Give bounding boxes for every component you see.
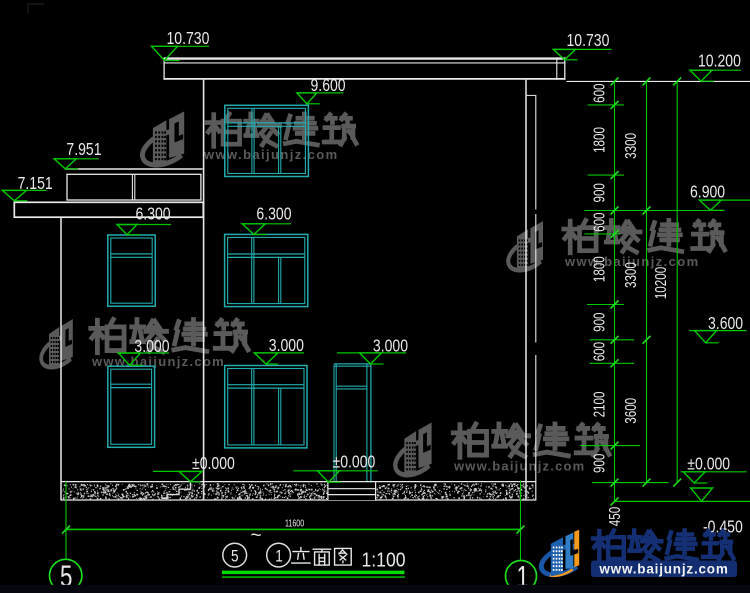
svg-text:450: 450	[607, 506, 624, 526]
svg-text:6.300: 6.300	[256, 204, 291, 224]
svg-text:10.200: 10.200	[698, 51, 741, 71]
svg-text:www.baijunjz.com: www.baijunjz.com	[203, 147, 339, 162]
svg-text:www.baijunjz.com: www.baijunjz.com	[453, 459, 585, 474]
svg-text:10.730: 10.730	[167, 28, 210, 48]
svg-text:3300: 3300	[622, 133, 639, 159]
svg-text:900: 900	[591, 312, 608, 332]
svg-text:www.baijunjz.com: www.baijunjz.com	[598, 561, 728, 576]
svg-text:±0.000: ±0.000	[192, 453, 235, 473]
svg-text:6.900: 6.900	[690, 182, 725, 202]
svg-text:1: 1	[275, 547, 283, 566]
svg-text:1800: 1800	[591, 127, 608, 153]
svg-text:3300: 3300	[622, 262, 639, 288]
svg-text:±0.000: ±0.000	[333, 452, 376, 472]
svg-text:~: ~	[251, 526, 262, 547]
svg-text:600: 600	[591, 342, 608, 362]
svg-text:10.730: 10.730	[567, 30, 610, 50]
svg-text:900: 900	[591, 453, 608, 473]
svg-text:±0.000: ±0.000	[687, 454, 730, 474]
svg-text:1:100: 1:100	[362, 548, 406, 570]
svg-text:7.951: 7.951	[66, 140, 101, 160]
svg-text:10200: 10200	[653, 267, 670, 300]
svg-text:2100: 2100	[591, 391, 608, 417]
svg-text:5: 5	[231, 547, 239, 566]
svg-text:600: 600	[591, 212, 608, 232]
svg-text:1800: 1800	[591, 256, 608, 282]
svg-text:6.300: 6.300	[136, 204, 171, 224]
svg-text:600: 600	[591, 83, 608, 103]
svg-text:900: 900	[591, 183, 608, 203]
svg-text:3600: 3600	[622, 398, 639, 424]
svg-text:11600: 11600	[285, 517, 304, 529]
